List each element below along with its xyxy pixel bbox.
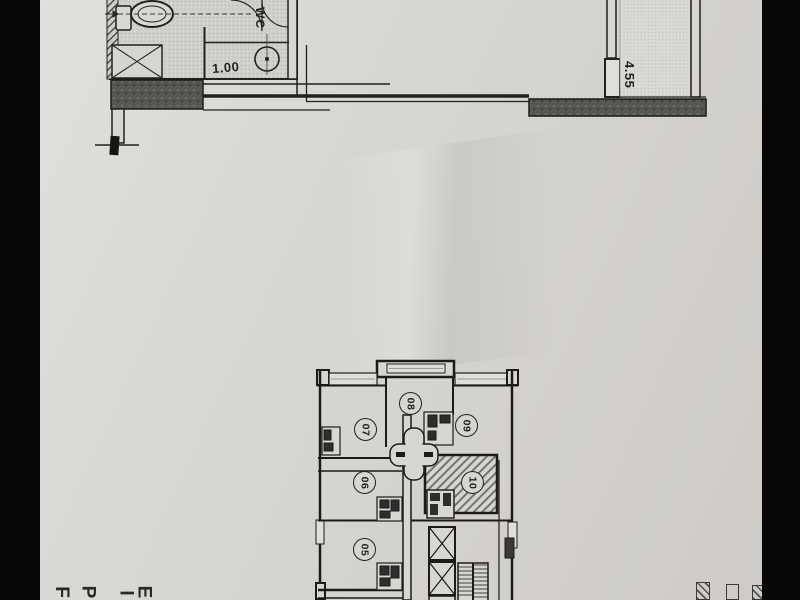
shaft-x-box [112, 45, 162, 78]
elevator-shafts [429, 527, 455, 600]
room-number-08: 08 [405, 397, 417, 410]
room-number-09: 09 [461, 419, 473, 432]
wall-band-right [529, 99, 706, 116]
room-number-badge-06: 06 [353, 471, 376, 494]
wall-band-left [111, 80, 203, 109]
room-number-10: 10 [467, 476, 479, 489]
floor-plan-photo: WC 1.00 4.55 05 06 07 08 09 10 F P I E [0, 0, 800, 600]
room-number-07: 07 [360, 423, 372, 436]
room-number-badge-09: 09 [455, 414, 478, 437]
legend-empty-swatch-icon [726, 584, 739, 600]
right-wall [605, 0, 620, 97]
margin-text-fragment-4: E [132, 586, 154, 599]
wc-label: WC [253, 7, 267, 29]
legend-hatch-swatch-icon [696, 582, 710, 600]
room-number-badge-05: 05 [353, 538, 376, 561]
top-bay [377, 361, 454, 377]
upper-plan-drawing [0, 0, 800, 175]
room-number-06: 06 [359, 476, 371, 489]
room-number-badge-10: 10 [461, 471, 484, 494]
right-wall-column [505, 538, 514, 558]
wall-stub-lower-left [95, 109, 139, 155]
dim-label-horizontal: 1.00 [211, 59, 240, 76]
letterbox-left [0, 0, 40, 600]
dim-label-vertical: 4.55 [622, 61, 637, 88]
margin-text-fragment-2: P [76, 586, 98, 599]
room-number-05: 05 [359, 543, 371, 556]
lower-plan-drawing [298, 348, 523, 600]
margin-text-fragment-1: F [50, 586, 72, 598]
room-number-badge-08: 08 [399, 392, 422, 415]
letterbox-right [762, 0, 800, 600]
slab-lines [203, 80, 529, 110]
staircase [458, 563, 488, 600]
room-number-badge-07: 07 [354, 418, 377, 441]
